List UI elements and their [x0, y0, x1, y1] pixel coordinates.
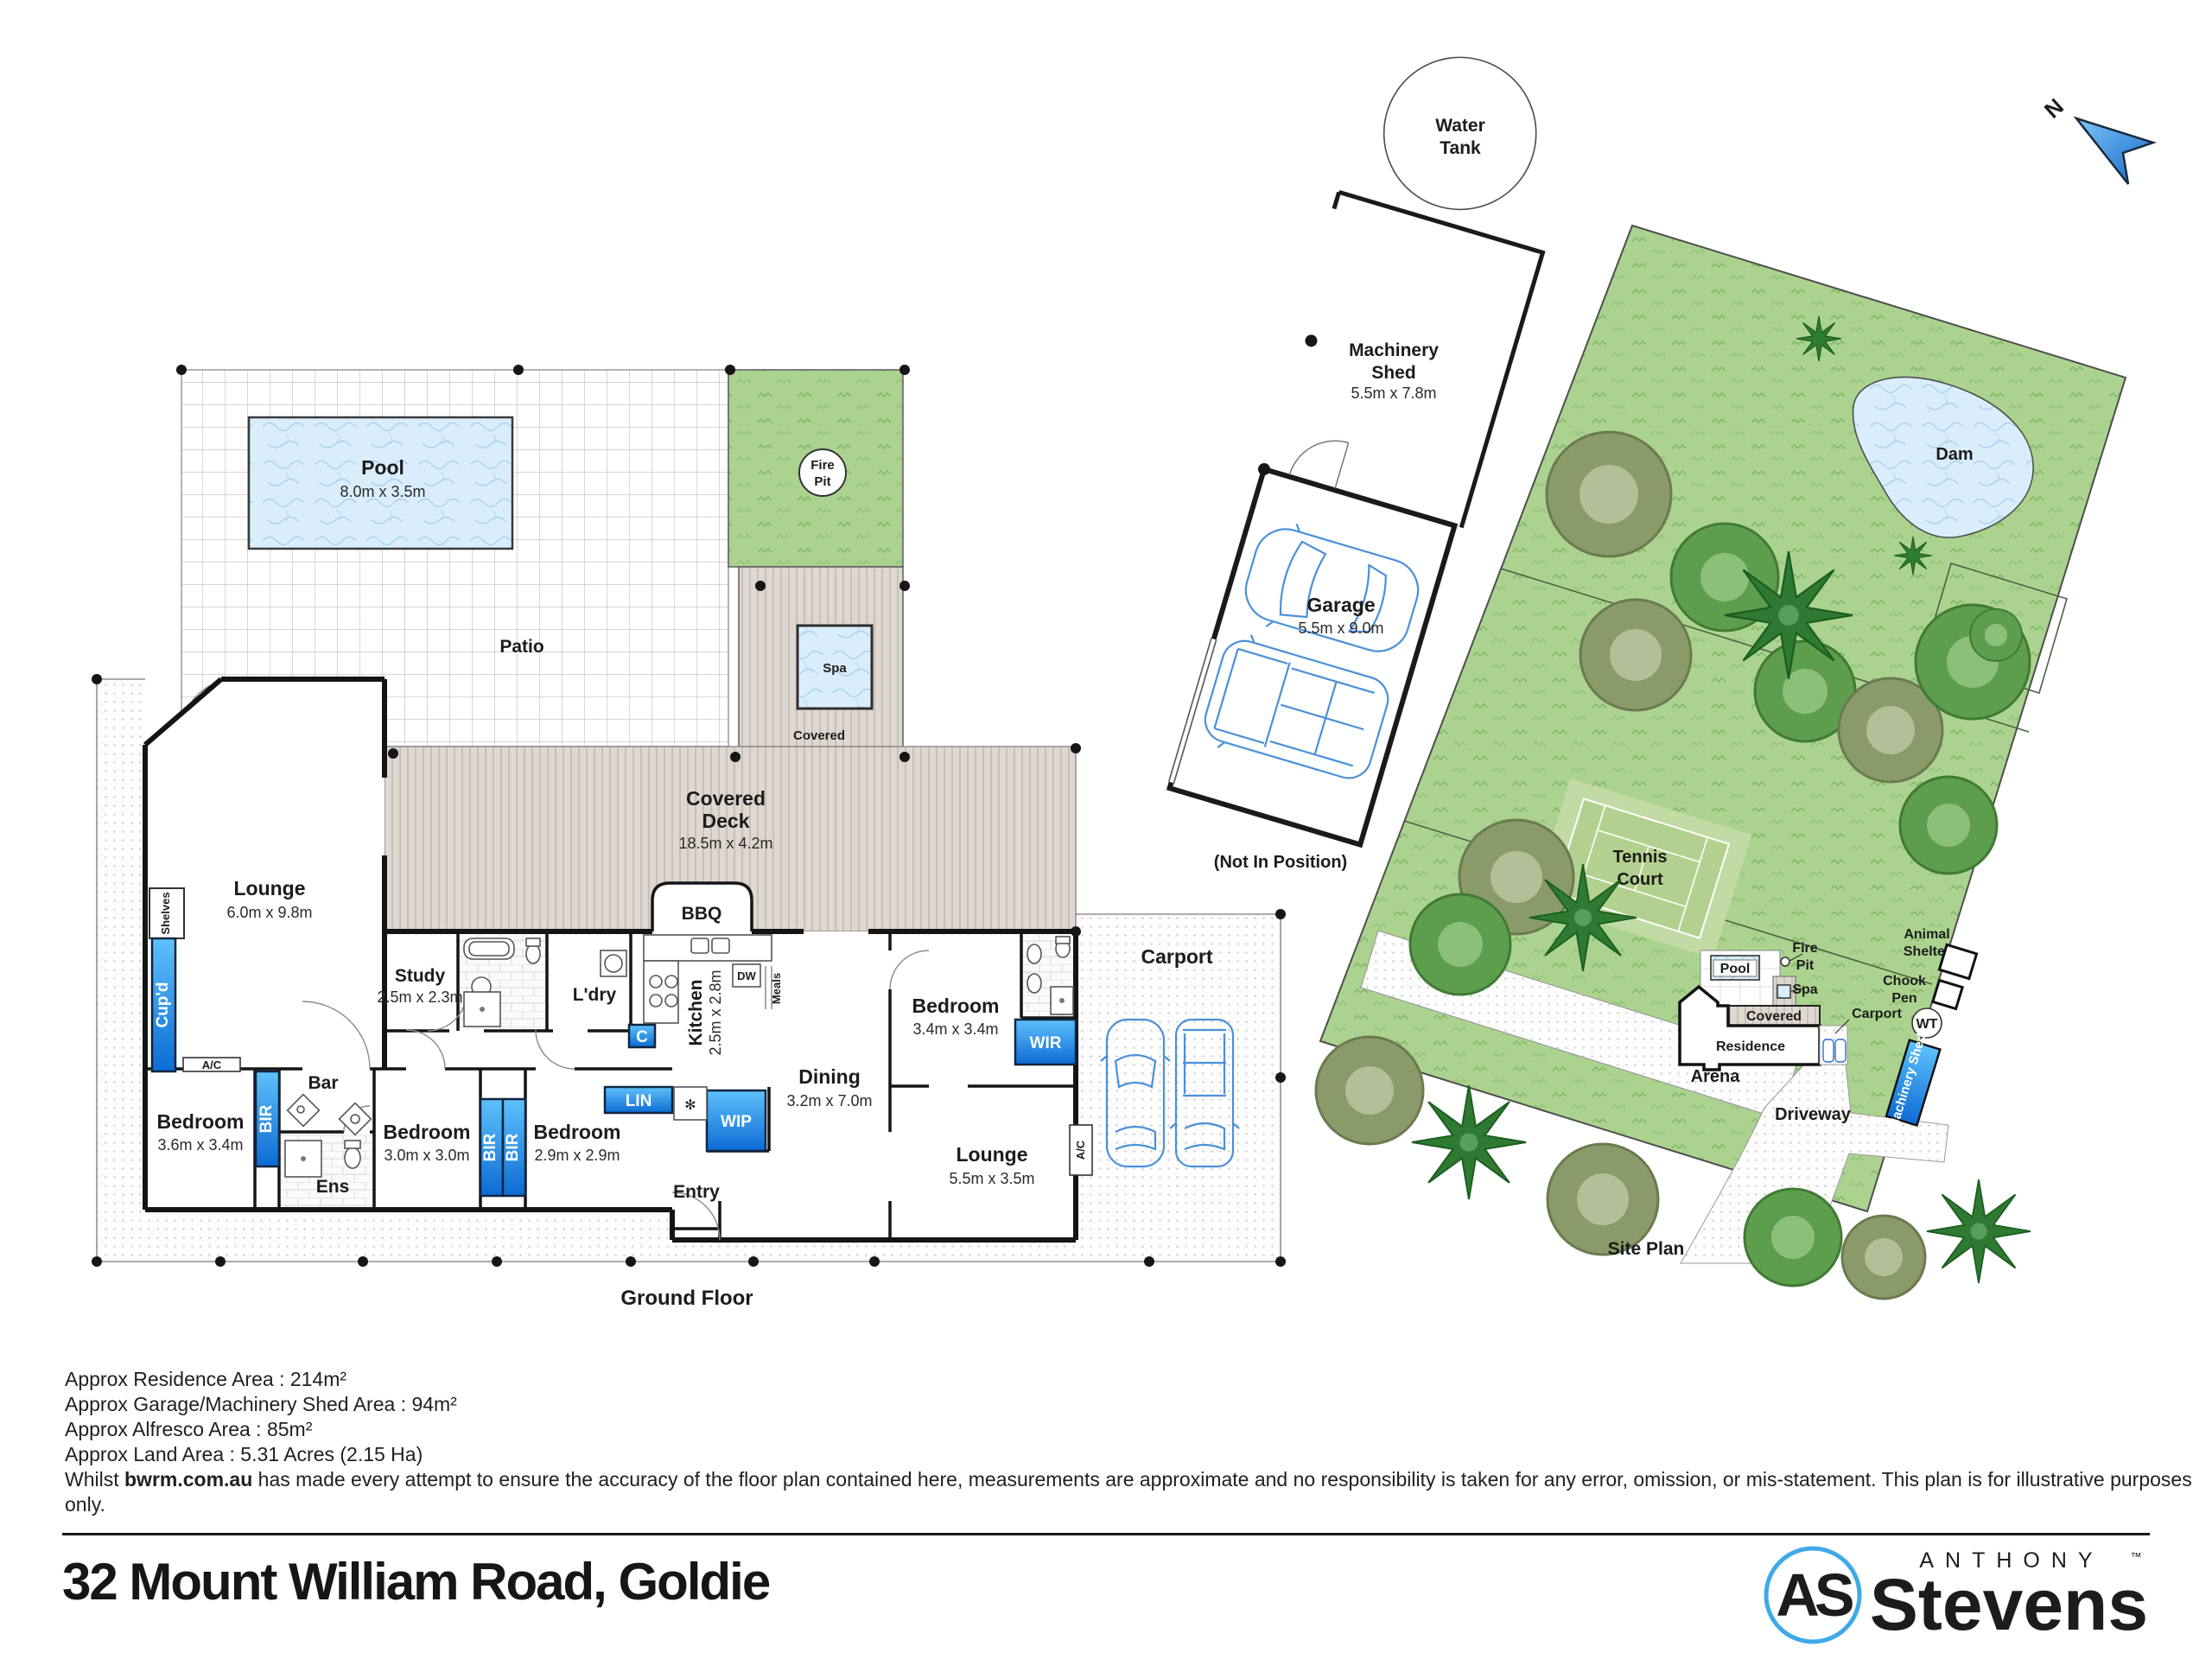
site-plan: Dam Tennis Court Arena Driveway Pool Fir… [1316, 226, 2126, 1299]
site-residence-label: Residence [1716, 1039, 1785, 1054]
wir-label: WIR [1030, 1034, 1062, 1052]
ac-1-label: A/C [202, 1058, 222, 1071]
chook-pen-label-1: Chook [1883, 974, 1926, 988]
lounge-dim: 6.0m x 9.8m [226, 904, 312, 921]
ens-label: Ens [316, 1177, 350, 1197]
plans-canvas: Pool 8.0m x 3.5m Patio Fire Pit Spa Cove… [0, 0, 2212, 1352]
site-plan-label: Site Plan [1608, 1239, 1685, 1259]
deck-label-1: Covered [686, 787, 766, 810]
kitchen-label: Kitchen [686, 979, 706, 1046]
cupboard-c-label: C [636, 1028, 648, 1046]
kitchen-dim: 2.5m x 2.8m [707, 969, 724, 1055]
area-garage: Approx Garage/Machinery Shed Area : 94m² [65, 1392, 2212, 1417]
bed1-label: Bedroom [157, 1110, 245, 1133]
site-fire-pit [1781, 957, 1789, 966]
lounge2-dim: 5.5m x 3.5m [949, 1170, 1034, 1187]
area-alfresco: Approx Alfresco Area : 85m² [65, 1417, 2212, 1442]
disclaimer-site: bwrm.com.au [124, 1468, 252, 1491]
bed3-label: Bedroom [534, 1121, 621, 1143]
wt-label: WT [1916, 1017, 1938, 1032]
bir-1-label: BIR [257, 1104, 276, 1133]
north-arrow-glyph [2076, 118, 2153, 184]
ac-2-label: A/C [1074, 1140, 1087, 1160]
dining-label: Dining [798, 1065, 861, 1088]
disclaimer-rest: has made every attempt to ensure the acc… [65, 1468, 2192, 1516]
site-covered-label: Covered [1746, 1009, 1802, 1024]
area-residence: Approx Residence Area : 214m² [65, 1367, 2212, 1392]
shed-dim: 5.5m x 7.8m [1351, 385, 1436, 402]
study-label: Study [395, 966, 446, 986]
bed-master-label: Bedroom [912, 995, 1000, 1017]
entry-label: Entry [673, 1182, 720, 1202]
area-land: Approx Land Area : 5.31 Acres (2.15 Ha) [65, 1442, 2212, 1467]
site-pool-label: Pool [1720, 962, 1751, 976]
bar-label: Bar [308, 1073, 338, 1093]
shed-label-1: Machinery [1349, 340, 1439, 360]
bed2-dim: 3.0m x 3.0m [384, 1147, 469, 1164]
pantry-glyph: ✻ [684, 1098, 696, 1113]
shelves-label: Shelves [159, 892, 172, 934]
bed-master-dim: 3.4m x 3.4m [912, 1020, 998, 1038]
spa-label: Spa [823, 661, 847, 676]
property-address: 32 Mount William Road, Goldie [62, 1552, 769, 1611]
site-spa [1777, 985, 1790, 998]
disclaimer: Whilst bwrm.com.au has made every attemp… [65, 1467, 2212, 1517]
floor-plan: Pool 8.0m x 3.5m Patio Fire Pit Spa Cove… [92, 365, 1286, 1310]
deck-label-2: Deck [702, 810, 750, 832]
dw-label: DW [737, 969, 756, 982]
north-arrow: N [2039, 93, 2153, 184]
bir-3-label: BIR [504, 1133, 522, 1161]
lounge-label: Lounge [233, 877, 305, 899]
firepit-label-1: Fire [810, 458, 835, 473]
site-spa-label: Spa [1792, 982, 1817, 997]
logo-initials: AS [1776, 1561, 1853, 1629]
carport-label: Carport [1141, 945, 1212, 968]
animal-shelter [1939, 944, 1976, 978]
shed-label-2: Shed [1371, 363, 1415, 383]
garage-label: Garage [1306, 594, 1375, 616]
deck-dim: 18.5m x 4.2m [678, 835, 772, 852]
laundry-fixtures [601, 950, 626, 976]
firepit-label-2: Pit [814, 474, 830, 489]
ldry-label: L'dry [573, 985, 617, 1005]
spa-covered-label: Covered [793, 728, 845, 743]
water-tank-label-1: Water [1435, 116, 1485, 136]
veranda-left [97, 679, 145, 1262]
tennis-label-2: Court [1617, 870, 1663, 889]
dining-dim: 3.2m x 7.0m [786, 1092, 872, 1109]
meals-label: Meals [770, 973, 783, 1004]
chook-pen-label-2: Pen [1891, 991, 1916, 1006]
floorplan-page: Pool 8.0m x 3.5m Patio Fire Pit Spa Cove… [0, 0, 2212, 1659]
bir-2-label: BIR [481, 1133, 499, 1161]
lin-label: LIN [626, 1092, 652, 1110]
animal-shelter-label-1: Animal [1904, 927, 1949, 942]
tennis-label-1: Tennis [1613, 848, 1668, 867]
footer-divider [62, 1533, 2150, 1535]
brand-name-label: Stevens [1870, 1564, 2148, 1645]
pool-dim: 8.0m x 3.5m [340, 483, 425, 500]
footer-notes: Approx Residence Area : 214m² Approx Gar… [65, 1367, 2212, 1517]
wip-label: WIP [721, 1113, 752, 1131]
ground-floor-label: Ground Floor [620, 1287, 753, 1310]
disclaimer-prefix: Whilst [65, 1468, 124, 1491]
dam-label: Dam [1935, 445, 1973, 464]
bed1-dim: 3.6m x 3.4m [157, 1136, 243, 1154]
bed2-label: Bedroom [384, 1121, 471, 1143]
water-tank-label-2: Tank [1440, 138, 1481, 158]
study-dim: 2.5m x 2.3m [377, 988, 462, 1006]
pool-label: Pool [361, 456, 404, 479]
lounge2-label: Lounge [956, 1143, 1027, 1166]
brand-tm: ™ [2131, 1550, 2142, 1563]
bbq-label: BBQ [682, 904, 722, 924]
patio-label: Patio [499, 637, 543, 657]
driveway-label: Driveway [1775, 1105, 1852, 1124]
bed3-dim: 2.9m x 2.9m [534, 1147, 620, 1164]
brand-logo: AS ANTHONY ™ Stevens [1754, 1536, 2160, 1653]
chook-pen [1933, 980, 1962, 1008]
site-carport-label: Carport [1852, 1007, 1902, 1021]
site-firepit-label-2: Pit [1796, 958, 1815, 973]
not-in-position-note: (Not In Position) [1214, 853, 1347, 872]
garage-dim: 5.5m x 9.0m [1298, 620, 1383, 637]
north-label: N [2039, 93, 2069, 124]
cupboard-label: Cup'd [154, 982, 172, 1027]
site-firepit-label-1: Fire [1792, 941, 1817, 956]
